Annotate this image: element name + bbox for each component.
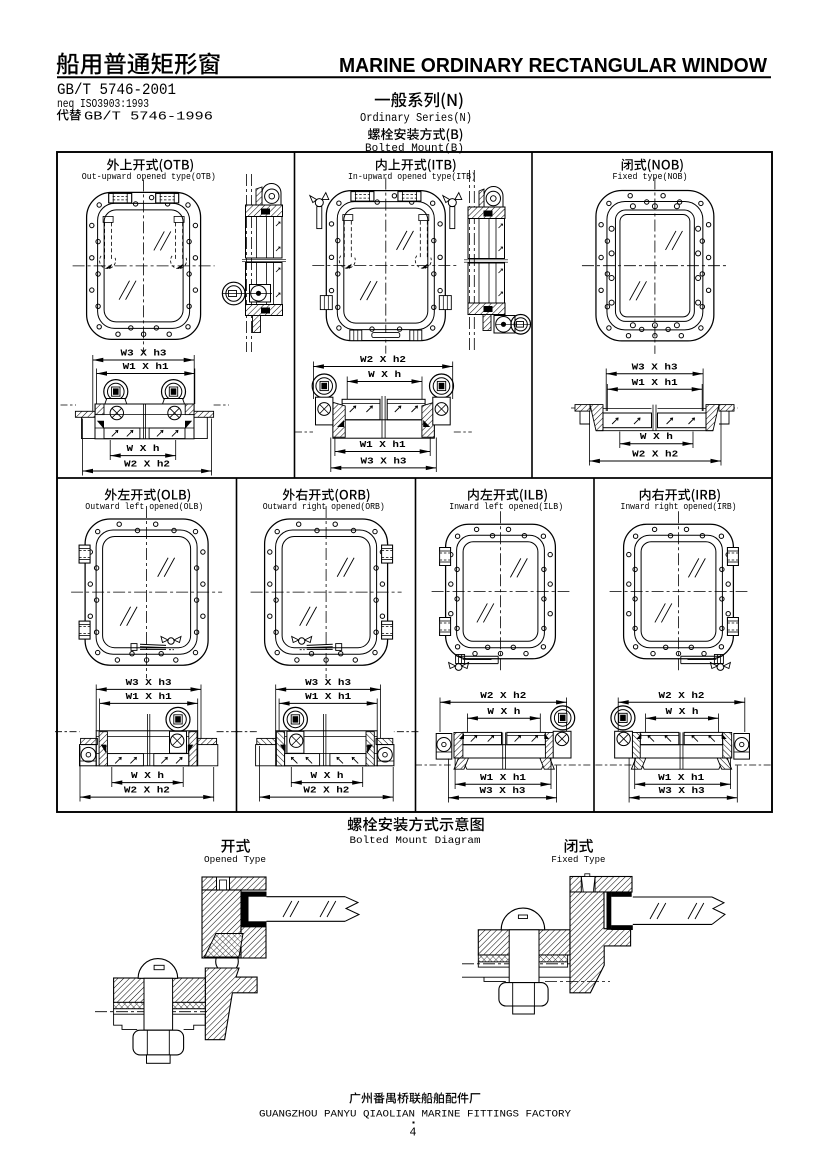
svg-text:Outward right opened(ORB): Outward right opened(ORB) (263, 502, 385, 512)
svg-text:W2 X h2: W2 X h2 (124, 785, 170, 796)
svg-text:W1 X h1: W1 X h1 (126, 691, 172, 702)
svg-text:Ordinary Series(N): Ordinary Series(N) (360, 112, 472, 125)
svg-text:W2 X h2: W2 X h2 (480, 690, 526, 701)
svg-text:Fixed type(NOB): Fixed type(NOB) (613, 172, 688, 182)
svg-text:W X h: W X h (368, 369, 401, 380)
svg-text:W2 X h2: W2 X h2 (659, 690, 705, 701)
svg-text:W3 X h3: W3 X h3 (305, 677, 351, 688)
svg-text:4: 4 (410, 1127, 417, 1140)
svg-text:W3 X h3: W3 X h3 (126, 677, 172, 688)
svg-text:W3 X h3: W3 X h3 (659, 785, 705, 796)
svg-text:W1 X h1: W1 X h1 (658, 772, 704, 783)
svg-text:W1 X h1: W1 X h1 (360, 439, 406, 450)
svg-text:W X h: W X h (640, 431, 673, 442)
svg-text:In-upward opened type(ITB): In-upward opened type(ITB) (348, 172, 476, 182)
svg-text:W1 X h1: W1 X h1 (632, 377, 678, 388)
svg-text:W X h: W X h (487, 706, 520, 717)
svg-text:GUANGZHOU PANYU QIAOLIAN MARIN: GUANGZHOU PANYU QIAOLIAN MARINE FITTINGS… (259, 1109, 572, 1121)
svg-text:Outward left opened(OLB): Outward left opened(OLB) (85, 502, 203, 512)
svg-text:Bolted Mount(B): Bolted Mount(B) (365, 143, 464, 155)
svg-text:W3 X h3: W3 X h3 (121, 348, 167, 359)
svg-text:W1 X h1: W1 X h1 (480, 772, 526, 783)
svg-text:W X h: W X h (311, 770, 344, 781)
svg-text:W2 X h2: W2 X h2 (360, 354, 406, 365)
svg-text:W2 X h2: W2 X h2 (303, 785, 349, 796)
svg-text:W3 X h3: W3 X h3 (361, 455, 407, 466)
svg-text:Fixed Type: Fixed Type (551, 854, 605, 865)
svg-text:W X h: W X h (131, 770, 164, 781)
svg-text:W3 X h3: W3 X h3 (632, 361, 678, 372)
svg-text:W1 X h1: W1 X h1 (305, 691, 351, 702)
svg-text:Inward right opened(IRB): Inward right opened(IRB) (621, 502, 737, 512)
svg-text:GB/T 5746-1996: GB/T 5746-1996 (84, 110, 213, 124)
svg-text:MARINE ORDINARY RECTANGULAR WI: MARINE ORDINARY RECTANGULAR WINDOW (339, 55, 767, 77)
svg-text:W2 X h2: W2 X h2 (632, 449, 678, 460)
svg-text:W3 X h3: W3 X h3 (480, 785, 526, 796)
svg-text:W X h: W X h (127, 443, 160, 454)
svg-text:Out-upward opened type(OTB): Out-upward opened type(OTB) (82, 172, 216, 182)
svg-text:W2 X h2: W2 X h2 (124, 459, 170, 470)
svg-text:W1 X h1: W1 X h1 (123, 361, 169, 372)
svg-text:Opened Type: Opened Type (204, 854, 266, 865)
svg-text:W X h: W X h (666, 706, 699, 717)
svg-text:Inward left opened(ILB): Inward left opened(ILB) (449, 502, 563, 512)
svg-text:Bolted Mount Diagram: Bolted Mount Diagram (350, 835, 481, 847)
